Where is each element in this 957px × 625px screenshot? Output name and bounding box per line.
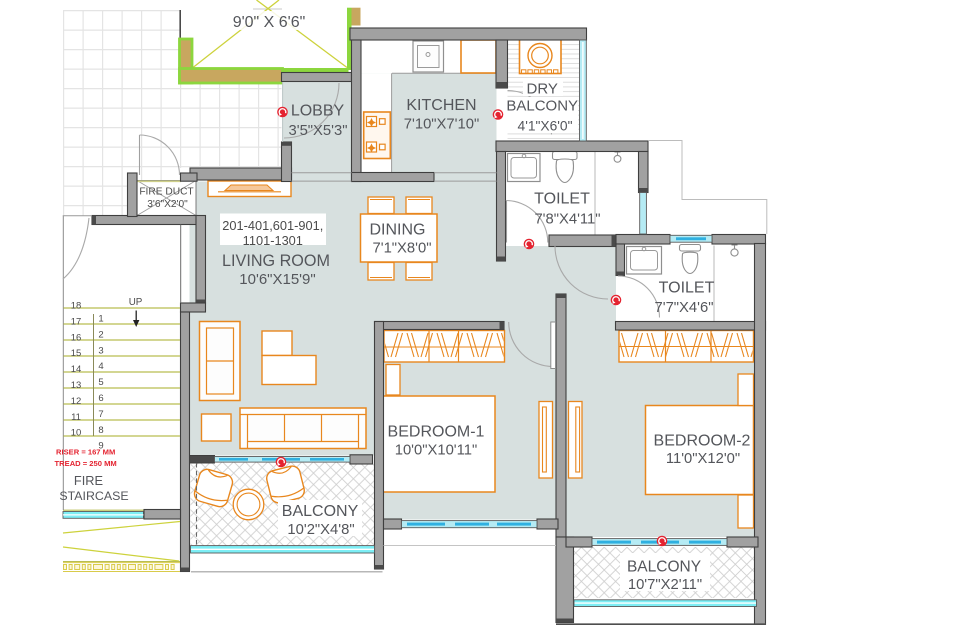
svg-text:7: 7 (98, 409, 103, 420)
svg-text:BALCONY: BALCONY (506, 98, 578, 115)
svg-text:14: 14 (71, 364, 82, 375)
svg-text:3: 3 (98, 345, 103, 356)
svg-text:11: 11 (71, 412, 81, 423)
svg-text:201-401,601-901,: 201-401,601-901, (222, 218, 323, 233)
svg-text:13: 13 (71, 380, 82, 391)
svg-text:KITCHEN: KITCHEN (406, 97, 476, 114)
svg-text:STAIRCASE: STAIRCASE (59, 489, 128, 503)
svg-text:1101-1301: 1101-1301 (243, 233, 303, 248)
svg-text:DINING: DINING (370, 222, 426, 239)
svg-text:BALCONY: BALCONY (627, 559, 701, 576)
svg-text:4'1"X6'0": 4'1"X6'0" (518, 119, 573, 134)
svg-text:12: 12 (71, 396, 82, 407)
svg-text:DRY: DRY (526, 81, 557, 98)
svg-text:7'8"X4'11": 7'8"X4'11" (534, 212, 600, 228)
svg-text:FIRE: FIRE (74, 473, 103, 488)
svg-text:4: 4 (98, 361, 103, 372)
svg-text:RISER = 167 MM: RISER = 167 MM (56, 448, 115, 457)
svg-text:9'0" X 6'6": 9'0" X 6'6" (233, 14, 306, 31)
svg-text:3'5"X5'3": 3'5"X5'3" (289, 123, 348, 139)
svg-text:10'0"X10'11": 10'0"X10'11" (395, 443, 478, 459)
svg-text:TREAD = 250 MM: TREAD = 250 MM (55, 459, 117, 468)
svg-text:LOBBY: LOBBY (291, 103, 345, 120)
svg-text:3'6"X2'0": 3'6"X2'0" (147, 199, 188, 210)
svg-text:11'0"X12'0": 11'0"X12'0" (666, 451, 740, 467)
svg-text:BALCONY: BALCONY (282, 503, 359, 520)
svg-text:10'6"X15'9": 10'6"X15'9" (239, 271, 315, 288)
svg-text:16: 16 (71, 332, 82, 343)
svg-text:10: 10 (71, 428, 82, 439)
svg-text:FIRE DUCT: FIRE DUCT (139, 187, 193, 198)
svg-text:8: 8 (98, 425, 103, 436)
svg-text:2: 2 (98, 329, 103, 340)
svg-text:6: 6 (98, 393, 103, 404)
svg-text:BEDROOM-1: BEDROOM-1 (388, 424, 485, 441)
svg-text:17: 17 (71, 316, 82, 327)
svg-text:15: 15 (71, 348, 82, 359)
svg-text:BEDROOM-2: BEDROOM-2 (654, 433, 751, 450)
svg-text:TOILET: TOILET (659, 280, 715, 297)
svg-text:10'2"X4'8": 10'2"X4'8" (287, 522, 354, 538)
svg-text:7'10"X7'10": 7'10"X7'10" (404, 117, 479, 133)
svg-text:UP: UP (129, 297, 143, 308)
svg-text:1: 1 (98, 314, 103, 325)
svg-text:18: 18 (71, 301, 82, 312)
svg-text:5: 5 (98, 377, 103, 388)
svg-text:10'7"X2'11": 10'7"X2'11" (628, 577, 702, 593)
svg-text:7'7"X4'6": 7'7"X4'6" (655, 300, 714, 316)
svg-text:TOILET: TOILET (534, 191, 590, 208)
svg-text:7'1"X8'0": 7'1"X8'0" (373, 241, 432, 257)
svg-text:LIVING ROOM: LIVING ROOM (222, 252, 330, 270)
